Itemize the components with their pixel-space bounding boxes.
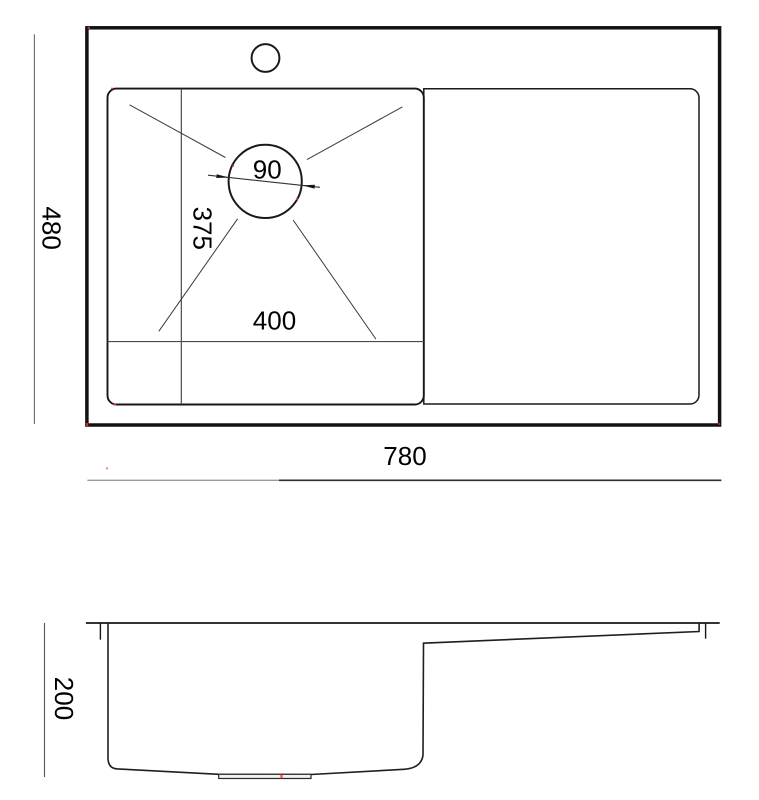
svg-text:200: 200 xyxy=(49,677,79,720)
svg-text:400: 400 xyxy=(253,305,296,335)
svg-text:780: 780 xyxy=(383,441,426,471)
svg-text:480: 480 xyxy=(37,206,67,249)
svg-text:375: 375 xyxy=(188,207,218,250)
svg-text:90: 90 xyxy=(253,155,282,185)
